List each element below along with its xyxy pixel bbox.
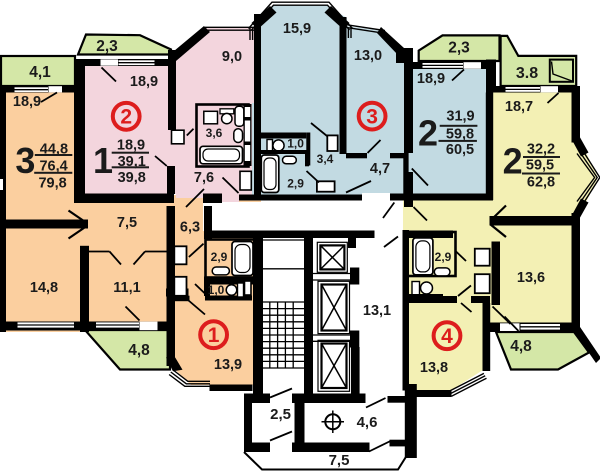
svg-text:31,9: 31,9 — [446, 109, 474, 125]
svg-text:4,7: 4,7 — [370, 161, 390, 177]
svg-text:2,3: 2,3 — [448, 40, 470, 57]
svg-text:4,8: 4,8 — [510, 338, 532, 355]
svg-text:3,6: 3,6 — [206, 126, 223, 140]
svg-text:18,9: 18,9 — [117, 138, 145, 154]
svg-text:1,0: 1,0 — [208, 283, 225, 297]
svg-text:14,8: 14,8 — [30, 280, 58, 296]
svg-text:13,6: 13,6 — [517, 270, 545, 286]
svg-text:1: 1 — [93, 140, 113, 181]
svg-text:3.8: 3.8 — [516, 65, 538, 82]
svg-text:62,8: 62,8 — [527, 175, 555, 191]
svg-text:2: 2 — [120, 106, 132, 129]
svg-text:2,3: 2,3 — [96, 38, 118, 55]
svg-text:11,1: 11,1 — [113, 280, 140, 296]
svg-text:3: 3 — [366, 106, 378, 129]
svg-text:4: 4 — [441, 325, 453, 348]
svg-text:39,8: 39,8 — [118, 170, 146, 186]
svg-text:18,9: 18,9 — [130, 74, 158, 90]
svg-text:7,6: 7,6 — [194, 170, 214, 186]
svg-text:2: 2 — [503, 141, 523, 182]
svg-text:32,2: 32,2 — [527, 142, 555, 158]
svg-text:15,9: 15,9 — [283, 21, 311, 37]
svg-text:1,0: 1,0 — [287, 137, 304, 151]
svg-text:18,9: 18,9 — [13, 94, 41, 110]
svg-text:6,3: 6,3 — [180, 220, 200, 236]
svg-text:2,9: 2,9 — [211, 250, 228, 264]
svg-text:2: 2 — [418, 113, 438, 154]
svg-text:18,7: 18,7 — [505, 99, 533, 115]
svg-text:4,8: 4,8 — [128, 342, 150, 359]
svg-text:1: 1 — [208, 324, 220, 347]
svg-text:7,5: 7,5 — [117, 215, 137, 231]
svg-text:2,9: 2,9 — [287, 177, 304, 191]
svg-text:13,1: 13,1 — [363, 303, 391, 319]
svg-text:4,1: 4,1 — [29, 64, 51, 81]
svg-text:60,5: 60,5 — [446, 142, 474, 158]
svg-text:79,8: 79,8 — [38, 176, 66, 192]
svg-text:3,4: 3,4 — [317, 152, 334, 166]
svg-text:59,5: 59,5 — [526, 158, 554, 174]
svg-text:7,5: 7,5 — [329, 452, 350, 469]
svg-text:13,8: 13,8 — [420, 360, 448, 376]
svg-text:9,0: 9,0 — [222, 49, 242, 65]
svg-text:13,9: 13,9 — [214, 357, 242, 373]
svg-text:13,0: 13,0 — [354, 48, 382, 64]
svg-text:18,9: 18,9 — [417, 71, 445, 87]
svg-text:2,9: 2,9 — [435, 250, 452, 264]
svg-text:2,5: 2,5 — [270, 406, 291, 423]
svg-text:4,6: 4,6 — [357, 414, 378, 431]
svg-text:3: 3 — [15, 140, 35, 181]
